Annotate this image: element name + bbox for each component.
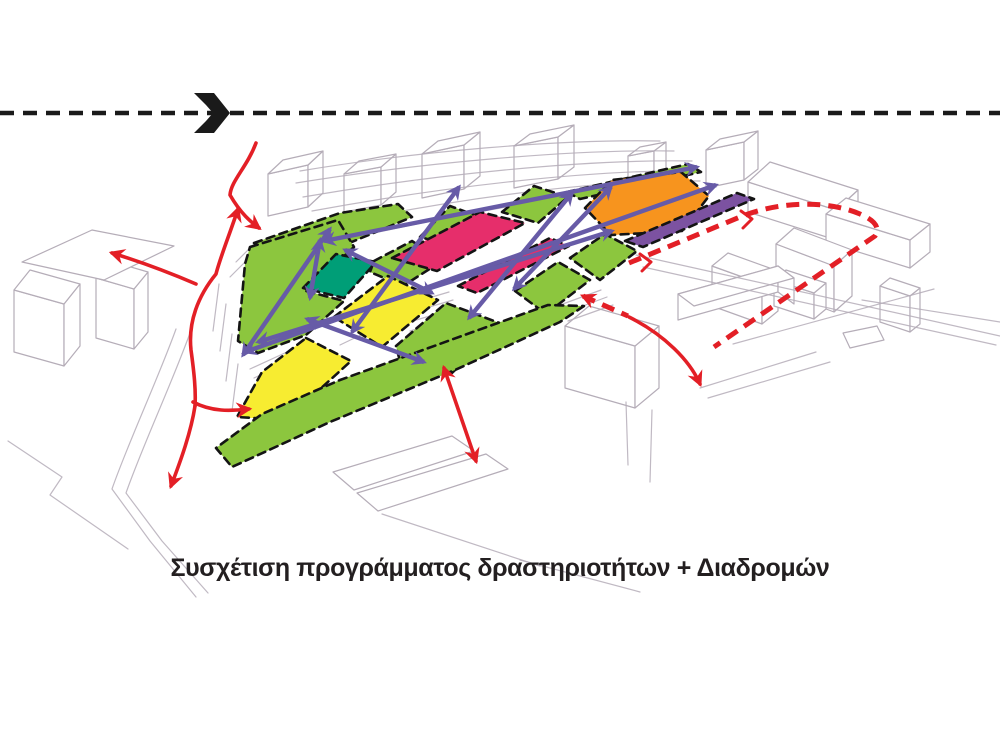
- sketch-line: [232, 364, 238, 411]
- sketch-building: [268, 151, 323, 216]
- sketch-layer: [8, 125, 1000, 597]
- sketch-lot-3: [843, 326, 884, 348]
- sketch-line: [226, 334, 232, 381]
- sketch-line: [650, 410, 652, 482]
- diagram-canvas: Συσχέτιση προγράμματος δραστηριοτήτων + …: [0, 0, 1000, 750]
- sketch-roof-left: [22, 230, 174, 280]
- sketch-line: [220, 304, 226, 351]
- sketch-building: [565, 306, 659, 408]
- sketch-line: [8, 441, 128, 549]
- sketch-building: [14, 270, 80, 366]
- flow-branch-down: [171, 406, 195, 486]
- flow-branch-right: [193, 402, 249, 410]
- sketch-line: [213, 284, 219, 331]
- diagram-caption: Συσχέτιση προγράμματος δραστηριοτήτων + …: [0, 554, 1000, 583]
- building-front-face: [96, 278, 134, 349]
- site-diagram-svg: [0, 0, 1000, 750]
- timeline-layer: [0, 93, 1000, 133]
- sketch-line: [700, 352, 816, 388]
- flow-trunk-up: [190, 209, 238, 406]
- sketch-line: [626, 402, 628, 465]
